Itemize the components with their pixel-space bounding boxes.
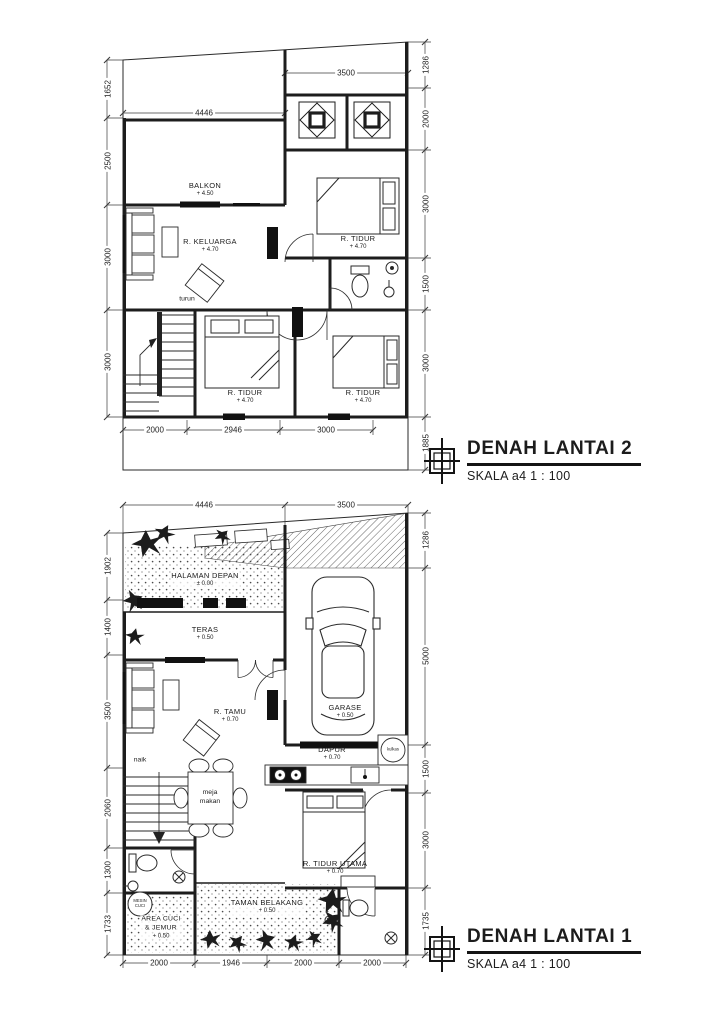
dim-label: 1500 — [422, 273, 431, 295]
shower-drain-icon — [386, 262, 398, 274]
stair-label-naik: naik — [134, 757, 146, 766]
room-label-tamu: R. TAMU + 0.70 — [214, 707, 246, 725]
floor2-plan: BALKON + 4.50 R. KELUARGA + 4.70 R. TIDU… — [95, 30, 440, 480]
washer-label: MESIN CUCI — [133, 899, 146, 909]
roof-ornament — [299, 102, 335, 138]
dim-label: 3000 — [104, 351, 113, 373]
bed — [317, 178, 399, 234]
plan-title: DENAH LANTAI 1 — [467, 926, 641, 954]
tv-cabinet — [267, 690, 278, 720]
stair-label-turun: turun — [179, 296, 195, 305]
dim-label: 2000 — [361, 959, 383, 968]
room-label-keluarga: R. KELUARGA + 4.70 — [183, 237, 237, 255]
stairs-up — [123, 772, 195, 844]
bed — [205, 316, 279, 388]
dim-label: 3500 — [335, 501, 357, 510]
stairs-down — [123, 312, 195, 411]
dim-label: 1902 — [104, 555, 113, 577]
section-marker-icon — [424, 438, 460, 484]
floor2-drawing — [95, 30, 440, 480]
dim-label: 3000 — [422, 193, 431, 215]
sofa — [126, 208, 154, 280]
plan-scale: SKALA a4 1 : 100 — [467, 954, 641, 971]
dim-label: 4446 — [193, 109, 215, 118]
dim-label: 3000 — [422, 829, 431, 851]
dim-label: 2946 — [222, 426, 244, 435]
section-marker-icon — [424, 926, 460, 972]
dim-label: 2000 — [292, 959, 314, 968]
room-label-tidur-kanan: R. TIDUR + 4.70 — [346, 388, 381, 406]
sofa — [126, 663, 154, 733]
coffee-table — [162, 227, 178, 257]
room-label-garase: GARASE + 0.50 — [328, 703, 361, 721]
room-label-balkon: BALKON + 4.50 — [189, 181, 221, 199]
dim-label: 2060 — [104, 797, 113, 819]
dim-label: 3500 — [104, 700, 113, 722]
dim-label: 5000 — [422, 645, 431, 667]
floor-drain-icon — [385, 932, 397, 944]
room-label-dapur: DAPUR + 0.70 — [318, 745, 346, 763]
plan-title: DENAH LANTAI 2 — [467, 438, 641, 466]
sink-icon — [384, 280, 394, 297]
dim-label: 1286 — [422, 54, 431, 76]
dim-label: 1500 — [422, 758, 431, 780]
dim-label: 1400 — [104, 616, 113, 638]
dim-label: 3500 — [335, 69, 357, 78]
room-label-tidur-tengah: R. TIDUR + 4.70 — [228, 388, 263, 406]
dim-label: 3000 — [104, 246, 113, 268]
room-label-halaman: HALAMAN DEPAN ± 0.00 — [170, 571, 240, 589]
titleblock-lantai1: DENAH LANTAI 1 SKALA a4 1 : 100 — [424, 926, 641, 972]
floor-drain-icon — [173, 871, 185, 883]
dim-label: 1652 — [104, 78, 113, 100]
room-label-tidur-atas: R. TIDUR + 4.70 — [341, 234, 376, 252]
room-label-teras: TERAS + 0.50 — [192, 625, 219, 643]
dresser — [341, 876, 375, 887]
dim-label: 1300 — [104, 859, 113, 881]
floor1-plan: HALAMAN DEPAN ± 0.00 TERAS + 0.50 R. TAM… — [95, 490, 440, 990]
dim-label: 1286 — [422, 529, 431, 551]
dim-label: 1733 — [104, 913, 113, 935]
armchair — [183, 720, 219, 756]
coffee-table — [163, 680, 179, 710]
floor-plan-sheet: BALKON + 4.50 R. KELUARGA + 4.70 R. TIDU… — [0, 0, 724, 1024]
plan-scale: SKALA a4 1 : 100 — [467, 466, 641, 483]
room-label-tidur-utama: R. TIDUR UTAMA + 0.70 — [303, 859, 367, 877]
room-label-taman: TAMAN BELAKANG + 0.50 — [230, 898, 304, 916]
titleblock-lantai2: DENAH LANTAI 2 SKALA a4 1 : 100 — [424, 438, 641, 484]
roof-ornament — [354, 102, 390, 138]
bed — [303, 792, 365, 868]
dim-label: 2000 — [144, 426, 166, 435]
fridge-label: kulkas — [387, 748, 399, 753]
toilet — [129, 854, 157, 872]
bed — [333, 336, 399, 388]
dim-label: 1946 — [220, 959, 242, 968]
dim-label: 3000 — [315, 426, 337, 435]
dining-label: meja makan — [200, 789, 220, 807]
dim-label: 4446 — [193, 501, 215, 510]
toilet — [343, 900, 368, 916]
dim-label: 3000 — [422, 352, 431, 374]
room-label-area-cuci: AREA CUCI & JEMUR + 0.50 — [140, 915, 181, 940]
door-arcs — [267, 234, 352, 340]
dim-label: 2000 — [422, 108, 431, 130]
toilet — [351, 266, 369, 297]
dim-label: 2500 — [104, 150, 113, 172]
kitchen-counter — [265, 765, 408, 785]
dim-label: 2000 — [148, 959, 170, 968]
